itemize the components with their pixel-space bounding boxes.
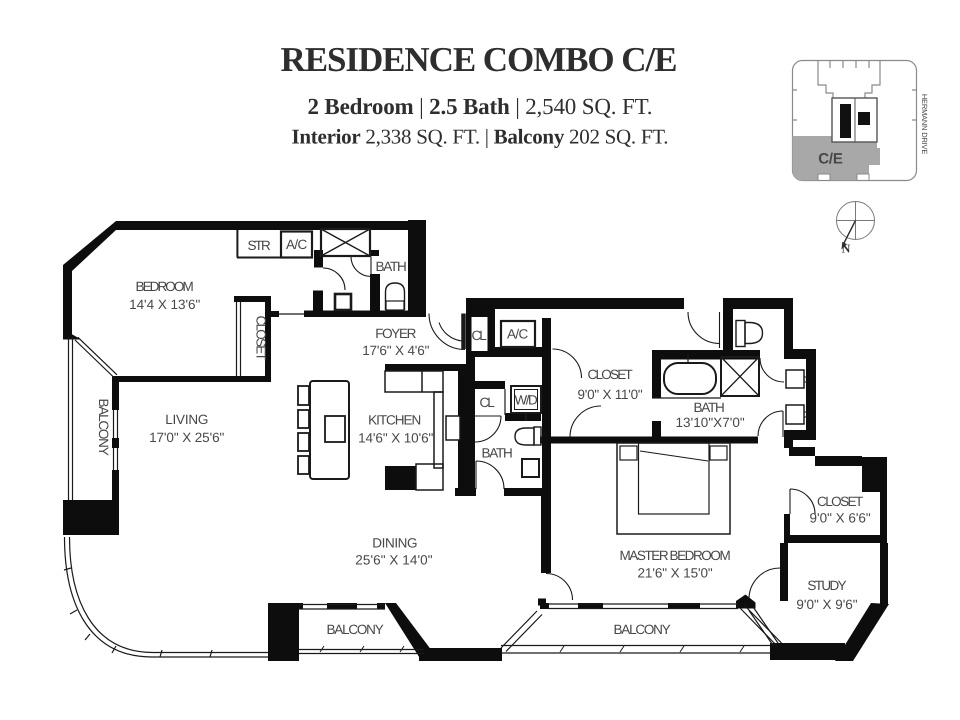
svg-text:FOYER: FOYER bbox=[375, 326, 416, 341]
svg-text:N: N bbox=[842, 242, 851, 256]
svg-text:9'0" X 11'0": 9'0" X 11'0" bbox=[578, 387, 643, 402]
svg-text:W/D: W/D bbox=[515, 393, 538, 408]
svg-text:CLOSET: CLOSET bbox=[254, 316, 269, 361]
svg-text:BATH: BATH bbox=[482, 446, 513, 461]
svg-text:CLOSET: CLOSET bbox=[588, 367, 633, 382]
svg-text:9'0" X 9'6": 9'0" X 9'6" bbox=[796, 597, 857, 612]
svg-text:KITCHEN: KITCHEN bbox=[368, 413, 421, 428]
svg-text:STR: STR bbox=[248, 238, 271, 253]
svg-text:BATH: BATH bbox=[376, 259, 407, 274]
svg-text:DINING: DINING bbox=[372, 536, 417, 551]
svg-text:BALCONY: BALCONY bbox=[96, 399, 111, 456]
svg-text:21'6" X 15'0": 21'6" X 15'0" bbox=[638, 566, 713, 581]
svg-text:BALCONY: BALCONY bbox=[614, 622, 671, 637]
svg-text:25'6" X 14'0": 25'6" X 14'0" bbox=[355, 553, 432, 568]
svg-text:CL: CL bbox=[480, 395, 496, 410]
svg-text:CL: CL bbox=[472, 328, 488, 343]
svg-text:BATH: BATH bbox=[694, 400, 725, 415]
svg-text:STUDY: STUDY bbox=[807, 578, 846, 593]
svg-text:MASTER BEDROOM: MASTER BEDROOM bbox=[620, 548, 731, 563]
svg-text:2 Bedroom | 2.5 Bath | 2,540 S: 2 Bedroom | 2.5 Bath | 2,540 SQ. FT. bbox=[308, 94, 653, 119]
svg-text:A/C: A/C bbox=[286, 237, 307, 252]
svg-text:14'4 X 13'6": 14'4 X 13'6" bbox=[129, 297, 200, 312]
svg-text:LIVING: LIVING bbox=[165, 412, 208, 427]
svg-text:Interior 2,338 SQ. FT. | Balco: Interior 2,338 SQ. FT. | Balcony 202 SQ.… bbox=[292, 125, 669, 149]
svg-text:13'10"X7'0": 13'10"X7'0" bbox=[676, 415, 745, 430]
svg-text:HERMANN DRIVE: HERMANN DRIVE bbox=[920, 94, 929, 155]
svg-text:BEDROOM: BEDROOM bbox=[136, 279, 194, 294]
svg-text:17'0" X 25'6": 17'0" X 25'6" bbox=[149, 430, 224, 445]
svg-text:A/C: A/C bbox=[507, 327, 528, 342]
svg-text:C/E: C/E bbox=[818, 151, 843, 168]
svg-text:9'0" X 6'6": 9'0" X 6'6" bbox=[810, 511, 871, 526]
svg-text:RESIDENCE COMBO C/E: RESIDENCE COMBO C/E bbox=[281, 40, 678, 79]
svg-text:BALCONY: BALCONY bbox=[327, 622, 384, 637]
svg-text:14'6" X 10'6": 14'6" X 10'6" bbox=[358, 431, 433, 446]
svg-text:17'6" X 4'6": 17'6" X 4'6" bbox=[362, 343, 429, 358]
svg-text:CLOSET: CLOSET bbox=[817, 494, 863, 509]
